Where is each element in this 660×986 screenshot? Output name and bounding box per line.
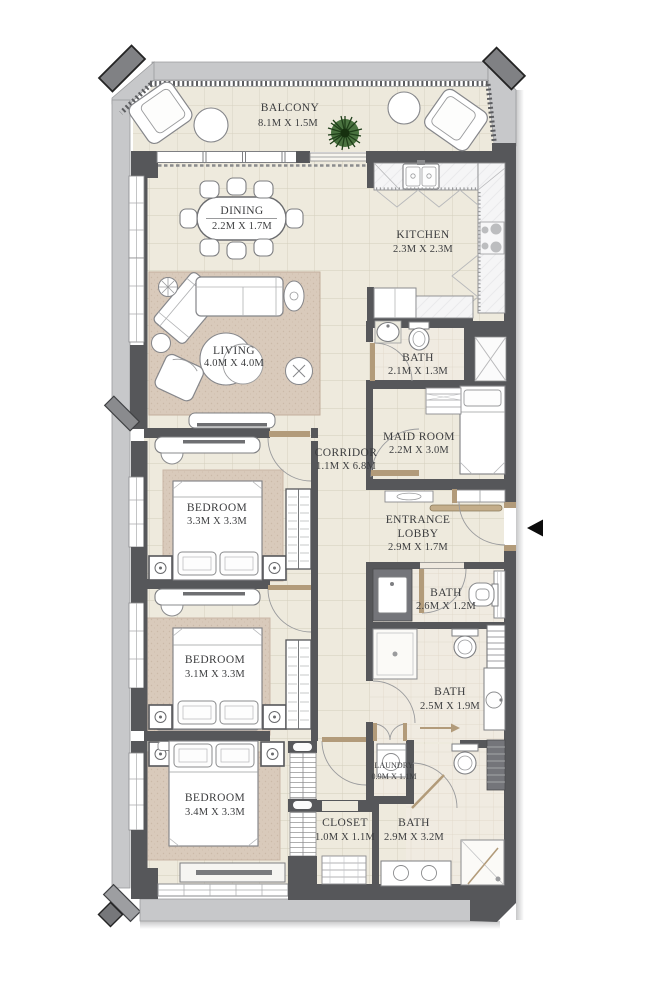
svg-text:BEDROOM: BEDROOM [185, 654, 245, 666]
svg-text:1.1M X 6.8M: 1.1M X 6.8M [316, 461, 376, 472]
svg-text:2.2M X 1.7M: 2.2M X 1.7M [212, 221, 272, 232]
svg-text:LAUNDRY: LAUNDRY [374, 761, 413, 770]
svg-text:0.9M X 1.1M: 0.9M X 1.1M [371, 772, 416, 781]
svg-text:2.2M X 3.0M: 2.2M X 3.0M [389, 445, 449, 456]
svg-text:DINING: DINING [220, 205, 263, 217]
svg-text:BEDROOM: BEDROOM [187, 502, 247, 514]
svg-text:LIVING: LIVING [213, 345, 255, 357]
svg-text:1.0M X 1.1M: 1.0M X 1.1M [315, 832, 375, 843]
svg-text:8.1M X 1.5M: 8.1M X 1.5M [258, 118, 318, 129]
svg-text:3.1M X 3.3M: 3.1M X 3.3M [185, 669, 245, 680]
svg-text:BATH: BATH [430, 587, 462, 599]
svg-text:ENTRANCE: ENTRANCE [386, 514, 451, 526]
svg-text:3.4M X 3.3M: 3.4M X 3.3M [185, 807, 245, 818]
svg-text:4.0M X 4.0M: 4.0M X 4.0M [204, 358, 264, 369]
svg-text:BATH: BATH [402, 352, 434, 364]
svg-text:MAID ROOM: MAID ROOM [383, 431, 455, 443]
svg-text:BEDROOM: BEDROOM [185, 792, 245, 804]
svg-text:CORRIDOR: CORRIDOR [315, 447, 378, 459]
svg-text:2.9M X 1.7M: 2.9M X 1.7M [388, 542, 448, 553]
svg-text:BATH: BATH [434, 686, 466, 698]
svg-text:LOBBY: LOBBY [398, 528, 439, 540]
svg-text:BALCONY: BALCONY [261, 102, 320, 114]
svg-text:BATH: BATH [398, 817, 430, 829]
svg-text:3.3M X 3.3M: 3.3M X 3.3M [187, 516, 247, 527]
svg-text:2.6M X 1.2M: 2.6M X 1.2M [416, 601, 476, 612]
svg-text:2.1M X 1.3M: 2.1M X 1.3M [388, 366, 448, 377]
svg-text:2.5M X 1.9M: 2.5M X 1.9M [420, 701, 480, 712]
svg-text:CLOSET: CLOSET [322, 817, 368, 829]
svg-text:2.3M X 2.3M: 2.3M X 2.3M [393, 244, 453, 255]
svg-text:2.9M X 3.2M: 2.9M X 3.2M [384, 832, 444, 843]
svg-text:KITCHEN: KITCHEN [396, 229, 450, 241]
